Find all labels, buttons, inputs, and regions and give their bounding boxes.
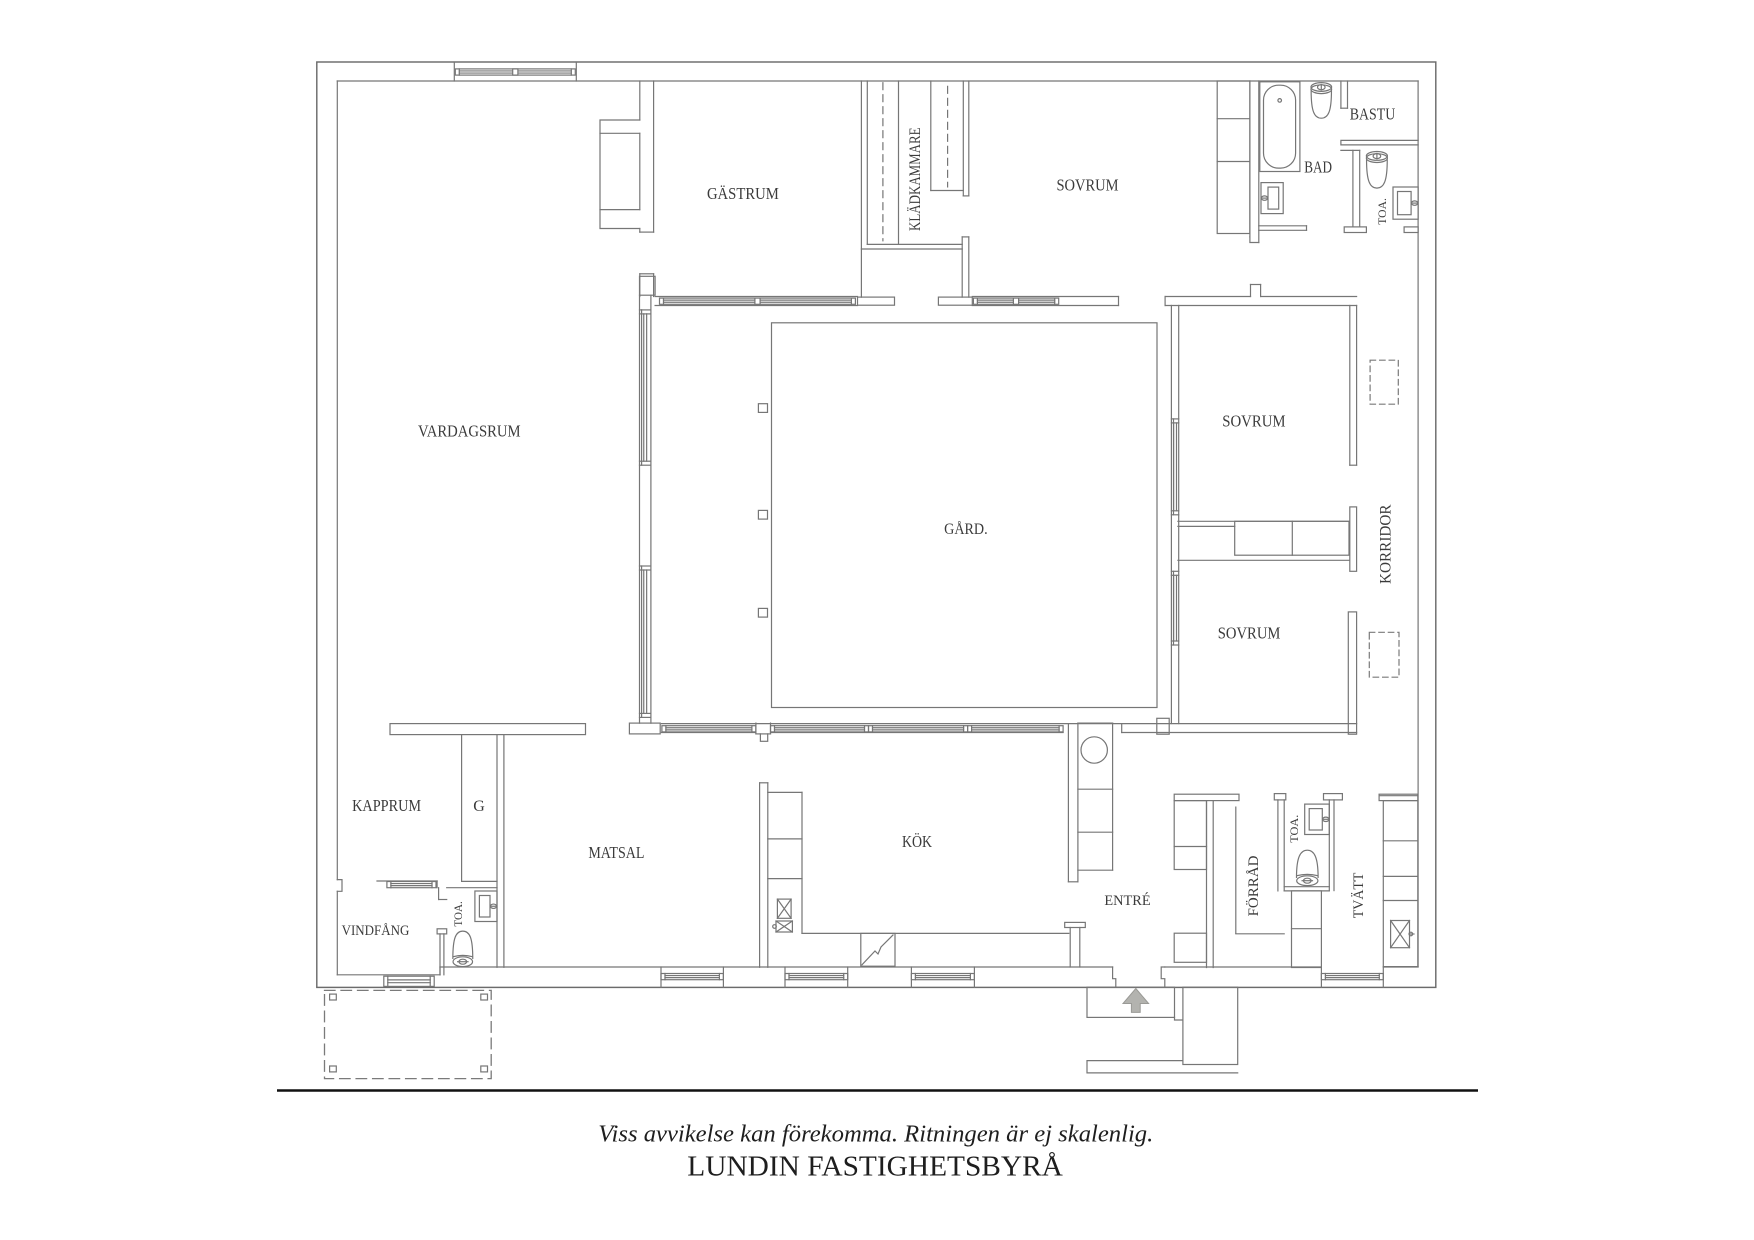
- svg-text:ENTRÉ: ENTRÉ: [1104, 892, 1150, 909]
- svg-text:TOA.: TOA.: [1287, 815, 1301, 843]
- svg-text:LUNDIN FASTIGHETSBYRÅ: LUNDIN FASTIGHETSBYRÅ: [687, 1152, 1063, 1183]
- svg-text:GÄSTRUM: GÄSTRUM: [707, 184, 779, 203]
- svg-text:FÖRRÅD: FÖRRÅD: [1245, 856, 1262, 917]
- svg-text:TOA.: TOA.: [1375, 198, 1389, 225]
- svg-text:TOA.: TOA.: [451, 901, 465, 926]
- svg-text:BAD: BAD: [1304, 158, 1332, 177]
- svg-text:SOVRUM: SOVRUM: [1218, 623, 1281, 642]
- svg-text:KAPPRUM: KAPPRUM: [352, 796, 421, 815]
- svg-text:SOVRUM: SOVRUM: [1056, 175, 1118, 194]
- svg-text:KLÄDKAMMARE: KLÄDKAMMARE: [907, 127, 924, 231]
- svg-text:KÖK: KÖK: [902, 832, 933, 851]
- svg-text:KORRIDOR: KORRIDOR: [1377, 504, 1394, 584]
- svg-text:G: G: [473, 798, 485, 815]
- svg-text:VARDAGSRUM: VARDAGSRUM: [418, 422, 521, 441]
- svg-text:GÅRD.: GÅRD.: [944, 520, 988, 538]
- svg-text:SOVRUM: SOVRUM: [1222, 412, 1285, 431]
- svg-text:MATSAL: MATSAL: [588, 843, 644, 862]
- svg-text:BASTU: BASTU: [1350, 104, 1396, 123]
- svg-text:VINDFÅNG: VINDFÅNG: [342, 923, 410, 939]
- svg-text:Viss avvikelse kan förekomma.: Viss avvikelse kan förekomma. Ritningen …: [598, 1122, 1153, 1148]
- svg-text:TVÄTT: TVÄTT: [1350, 872, 1367, 918]
